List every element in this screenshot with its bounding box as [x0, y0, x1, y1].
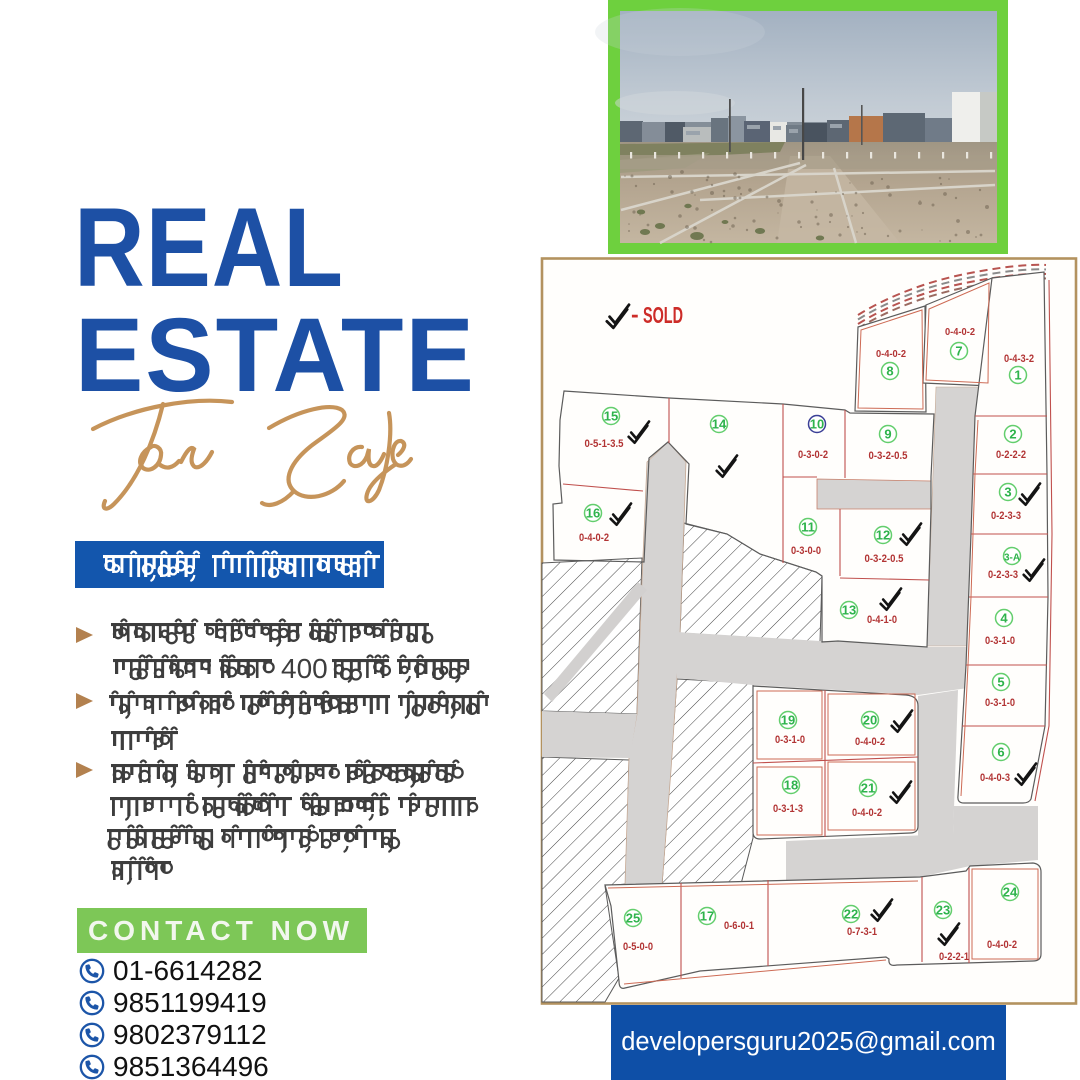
- svg-text:8: 8: [886, 364, 893, 379]
- svg-text:4: 4: [1000, 611, 1008, 626]
- svg-text:15: 15: [604, 409, 618, 424]
- svg-text:0-2-3-3: 0-2-3-3: [988, 569, 1018, 581]
- svg-text:0-4-1-0: 0-4-1-0: [867, 614, 897, 626]
- svg-text:5: 5: [997, 675, 1004, 690]
- svg-text:18: 18: [784, 778, 798, 793]
- svg-text:0-3-2-0.5: 0-3-2-0.5: [869, 450, 908, 462]
- svg-text:6: 6: [997, 745, 1004, 760]
- svg-text:0-2-2-2: 0-2-2-2: [996, 449, 1026, 461]
- svg-text:01-6614282: 01-6614282: [113, 955, 262, 986]
- svg-text:0-4-0-3: 0-4-0-3: [980, 772, 1010, 784]
- svg-text:0-3-2-0.5: 0-3-2-0.5: [865, 553, 904, 565]
- svg-text:0-2-3-3: 0-2-3-3: [991, 510, 1021, 522]
- svg-text:0-4-0-2: 0-4-0-2: [579, 532, 609, 544]
- svg-text:0-3-1-3: 0-3-1-3: [773, 803, 803, 815]
- svg-text:13: 13: [842, 603, 856, 618]
- svg-text:400: 400: [281, 653, 328, 684]
- svg-text:17: 17: [700, 909, 714, 924]
- svg-text:23: 23: [936, 903, 950, 918]
- svg-text:0-4-0-2: 0-4-0-2: [855, 736, 885, 748]
- svg-text:0-4-0-2: 0-4-0-2: [945, 326, 975, 338]
- svg-text:0-3-0-0: 0-3-0-0: [791, 545, 821, 557]
- svg-text:SOLD: SOLD: [643, 302, 683, 328]
- svg-text:16: 16: [586, 506, 600, 521]
- svg-text:19: 19: [781, 713, 795, 728]
- svg-text:0-4-0-2: 0-4-0-2: [876, 348, 906, 360]
- svg-text:12: 12: [876, 528, 890, 543]
- svg-text:-: -: [631, 301, 639, 327]
- svg-text:9: 9: [884, 427, 891, 442]
- svg-text:3-A: 3-A: [1004, 553, 1020, 564]
- svg-text:0-3-1-0: 0-3-1-0: [985, 697, 1015, 709]
- svg-text:0-5-1-3.5: 0-5-1-3.5: [585, 438, 624, 450]
- svg-text:0-3-0-2: 0-3-0-2: [798, 449, 828, 461]
- svg-text:0-4-0-2: 0-4-0-2: [852, 807, 882, 819]
- svg-text:9851364496: 9851364496: [113, 1051, 269, 1080]
- svg-text:1: 1: [1014, 368, 1021, 383]
- svg-text:7: 7: [955, 344, 962, 359]
- svg-text:0-5-0-0: 0-5-0-0: [623, 941, 653, 953]
- svg-text:0-6-0-1: 0-6-0-1: [724, 920, 754, 932]
- svg-text:14: 14: [712, 417, 727, 432]
- svg-text:24: 24: [1003, 885, 1018, 900]
- svg-text:9851199419: 9851199419: [113, 987, 267, 1018]
- svg-text:3: 3: [1004, 485, 1011, 500]
- svg-text:20: 20: [863, 713, 877, 728]
- svg-text:0-7-3-1: 0-7-3-1: [847, 926, 877, 938]
- svg-text:2: 2: [1009, 427, 1016, 442]
- svg-text:10: 10: [810, 417, 824, 432]
- svg-text:9802379112: 9802379112: [113, 1019, 267, 1050]
- svg-text:0-4-3-2: 0-4-3-2: [1004, 353, 1034, 365]
- svg-text:11: 11: [801, 520, 815, 535]
- svg-text:21: 21: [861, 781, 875, 796]
- svg-text:0-3-1-0: 0-3-1-0: [985, 635, 1015, 647]
- svg-text:0-2-2-1: 0-2-2-1: [939, 951, 969, 963]
- svg-text:0-3-1-0: 0-3-1-0: [775, 734, 805, 746]
- svg-text:0-4-0-2: 0-4-0-2: [987, 939, 1017, 951]
- svg-text:22: 22: [844, 907, 858, 922]
- svg-text:25: 25: [626, 911, 640, 926]
